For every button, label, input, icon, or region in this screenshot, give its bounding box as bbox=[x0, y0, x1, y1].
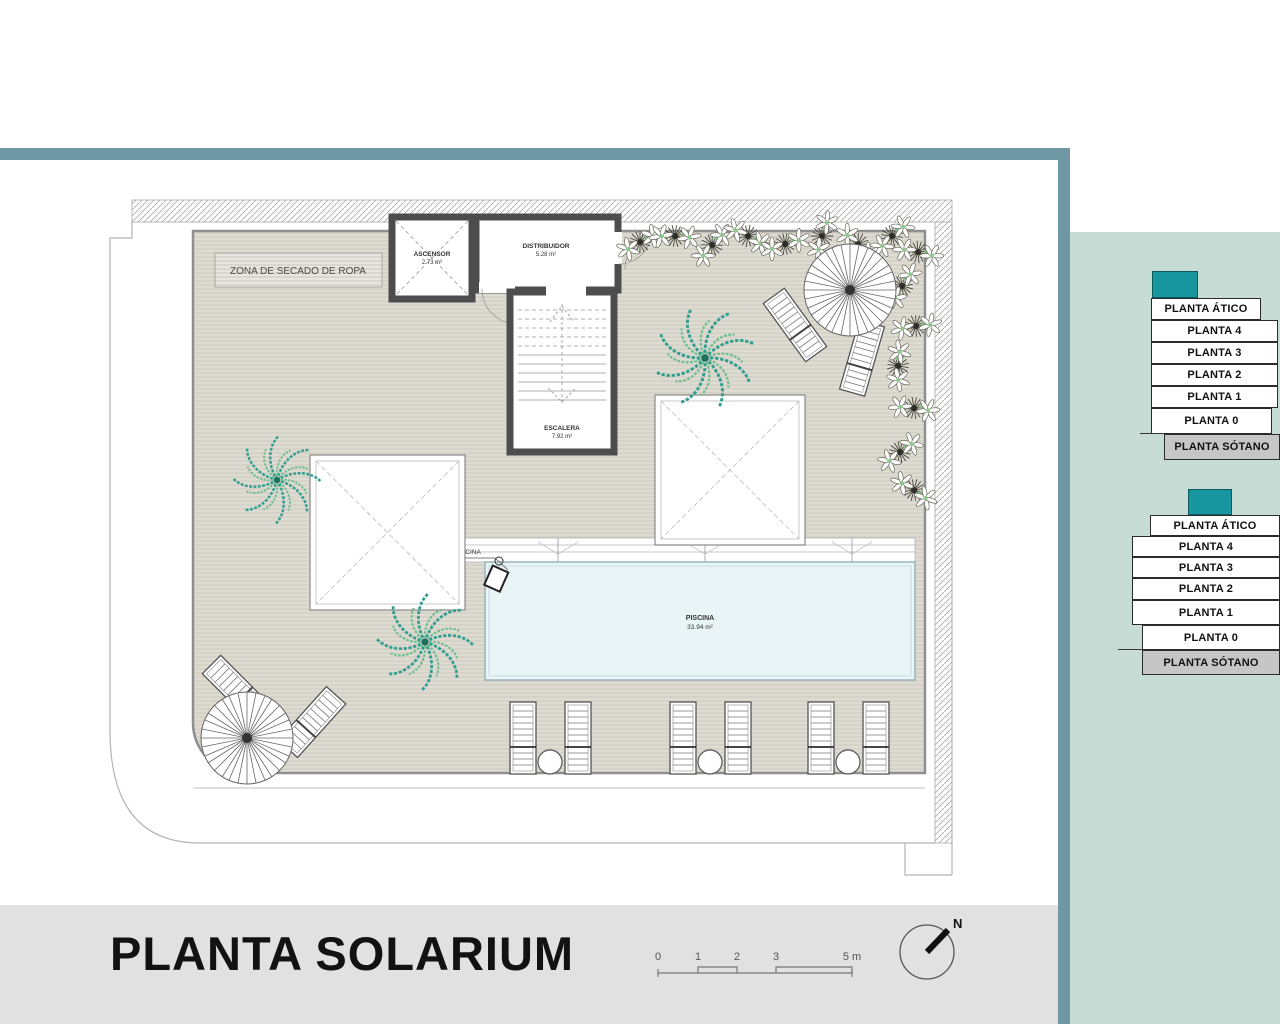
skylight-left bbox=[310, 455, 465, 610]
stack1-floor-3[interactable]: PLANTA 3 bbox=[1151, 342, 1278, 364]
stack1-floor-2[interactable]: PLANTA 2 bbox=[1151, 364, 1278, 386]
stack1-floor-0[interactable]: PLANTA 0 bbox=[1151, 408, 1272, 434]
scale-tick-1: 1 bbox=[695, 951, 701, 963]
drying-zone: ZONA DE SECADO DE ROPA bbox=[215, 253, 382, 287]
stack2-floor-0[interactable]: PLANTA 0 bbox=[1142, 625, 1280, 650]
north-label: N bbox=[953, 916, 962, 931]
scale-bar-line bbox=[658, 967, 852, 977]
pool: PISCINA 33.94 m² bbox=[485, 562, 915, 680]
page: ZONA DE SECADO DE ROPA PISCINA 33.94 m² … bbox=[0, 0, 1280, 1024]
stair-area: 7.92 m² bbox=[552, 434, 572, 440]
stack1-ground-line bbox=[1140, 433, 1164, 434]
pool-name: PISCINA bbox=[686, 615, 714, 622]
solarium-floor-plan: ZONA DE SECADO DE ROPA PISCINA 33.94 m² … bbox=[80, 190, 960, 900]
distributor-name: DISTRIBUIDOR bbox=[523, 243, 570, 250]
north-arrow: N bbox=[893, 908, 983, 1003]
scale-tick-5: 5 m bbox=[843, 951, 861, 963]
skylight-right bbox=[655, 395, 805, 545]
elevator-room: ASCENSOR 2.73 m² bbox=[392, 217, 472, 299]
stack2-floor-2[interactable]: PLANTA 2 bbox=[1132, 578, 1280, 600]
stack2-floor-4[interactable]: PLANTA 4 bbox=[1132, 536, 1280, 557]
stack1-floor-atico[interactable]: PLANTA ÁTICO bbox=[1151, 298, 1261, 320]
stack1-solarium-cap[interactable] bbox=[1152, 271, 1198, 298]
compass-needle bbox=[927, 930, 948, 952]
pool-area: 33.94 m² bbox=[687, 624, 713, 631]
elevator-name: ASCENSOR bbox=[414, 251, 451, 258]
frame-top-bar bbox=[0, 148, 1070, 160]
elevator-area: 2.73 m² bbox=[422, 260, 442, 266]
stack1-floor-4[interactable]: PLANTA 4 bbox=[1151, 320, 1278, 342]
stack2-floor-sotano[interactable]: PLANTA SÓTANO bbox=[1142, 650, 1280, 675]
drying-zone-label: ZONA DE SECADO DE ROPA bbox=[230, 266, 366, 277]
stack2-ground-line bbox=[1118, 649, 1142, 650]
stair-name: ESCALERA bbox=[544, 425, 580, 432]
frame-right-bar bbox=[1058, 148, 1070, 1024]
stack1-floor-1[interactable]: PLANTA 1 bbox=[1151, 386, 1278, 408]
stack2-floor-1[interactable]: PLANTA 1 bbox=[1132, 600, 1280, 625]
stack2-floor-3[interactable]: PLANTA 3 bbox=[1132, 557, 1280, 578]
stack1-floor-sotano[interactable]: PLANTA SÓTANO bbox=[1164, 434, 1280, 460]
stair-room: ESCALERA 7.92 m² bbox=[510, 286, 614, 452]
stack2-floor-atico[interactable]: PLANTA ÁTICO bbox=[1150, 515, 1280, 536]
distributor-area: 5.28 m² bbox=[536, 252, 556, 258]
scale-tick-3: 3 bbox=[773, 951, 779, 963]
scale-tick-2: 2 bbox=[734, 951, 740, 963]
scale-bar: 0 1 2 3 5 m bbox=[648, 942, 888, 986]
scale-tick-0: 0 bbox=[655, 951, 661, 963]
stack2-solarium-cap[interactable] bbox=[1188, 489, 1232, 515]
page-title: PLANTA SOLARIUM bbox=[110, 926, 574, 981]
